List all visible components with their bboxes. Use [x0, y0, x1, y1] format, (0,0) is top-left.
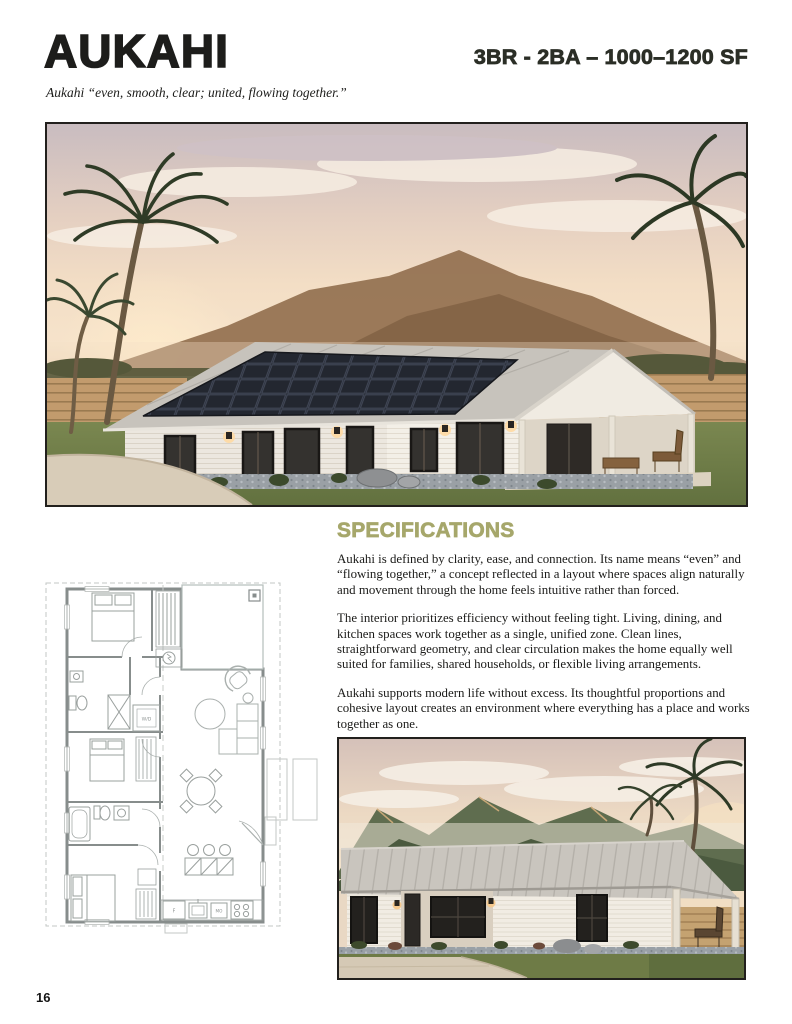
specifications-heading: SPECIFICATIONS	[337, 519, 751, 543]
specifications-paragraph-3: Aukahi supports modern life without exce…	[337, 686, 751, 732]
lawn-shaded	[649, 954, 744, 978]
fridge-label: F	[173, 909, 176, 915]
specifications-paragraph-1: Aukahi is defined by clarity, ease, and …	[337, 552, 751, 598]
entry-step	[265, 817, 276, 845]
floor-plan-image: W/D	[30, 577, 320, 947]
secondary-exterior-rendering-image	[337, 737, 746, 980]
parking-pad-2	[293, 759, 317, 820]
specifications-section: SPECIFICATIONS Aukahi is defined by clar…	[337, 519, 751, 745]
front-door	[405, 894, 420, 946]
page-tagline: Aukahi “even, smooth, clear; united, flo…	[46, 85, 347, 101]
front-view-rendering	[339, 739, 744, 978]
covered-lanai	[182, 585, 263, 669]
page-number: 16	[36, 990, 50, 1005]
microwave-label: MO	[216, 909, 224, 914]
washer-dryer-label: W/D	[142, 717, 152, 723]
brochure-page: AUKAHI Aukahi “even, smooth, clear; unit…	[0, 0, 792, 1024]
main-exterior-rendering-image	[45, 122, 748, 507]
utility-pad	[165, 924, 187, 933]
bed-bath-sqft-line: 3BR - 2BA – 1000–1200 SF	[474, 45, 748, 70]
specifications-paragraph-2: The interior prioritizes efficiency with…	[337, 611, 751, 673]
floor-plan-drawing: W/D	[30, 577, 320, 947]
parking-pad-1	[267, 759, 287, 820]
page-title: AUKAHI	[44, 26, 229, 77]
sunset-rendering	[47, 124, 746, 505]
